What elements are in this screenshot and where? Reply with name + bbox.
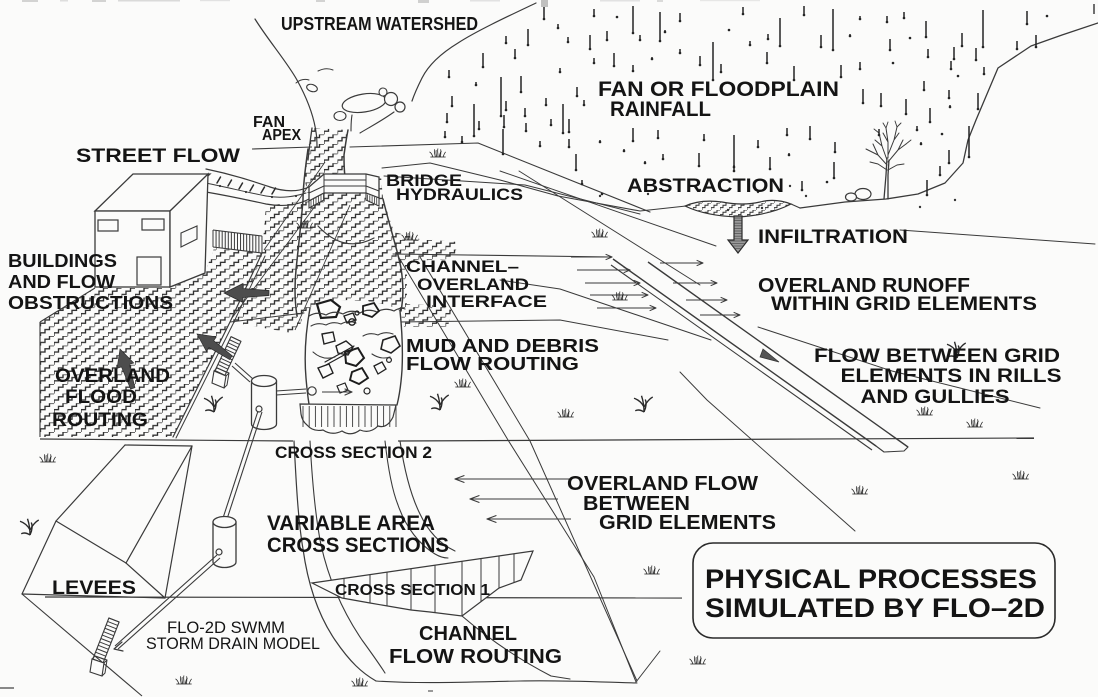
svg-text:GRID ELEMENTS: GRID ELEMENTS	[599, 512, 776, 534]
svg-text:PHYSICAL PROCESSES: PHYSICAL PROCESSES	[705, 564, 1037, 594]
svg-text:SIMULATED BY FLO–2D: SIMULATED BY FLO–2D	[705, 593, 1045, 623]
svg-text:ELEMENTS IN RILLS: ELEMENTS IN RILLS	[841, 366, 1062, 387]
svg-text:OVERLAND FLOW: OVERLAND FLOW	[567, 473, 758, 495]
svg-text:INTERFACE: INTERFACE	[426, 292, 547, 311]
svg-text:INFILTRATION: INFILTRATION	[758, 227, 908, 248]
svg-text:CROSS SECTIONS: CROSS SECTIONS	[267, 534, 449, 557]
svg-text:CHANNEL: CHANNEL	[419, 623, 517, 645]
svg-text:FLOW ROUTING: FLOW ROUTING	[406, 354, 579, 374]
svg-text:RAINFALL: RAINFALL	[610, 98, 711, 121]
svg-text:AND GULLIES: AND GULLIES	[861, 387, 1010, 408]
svg-text:STORM DRAIN MODEL: STORM DRAIN MODEL	[146, 634, 320, 653]
svg-text:FLOW ROUTING: FLOW ROUTING	[389, 646, 562, 668]
svg-text:WITHIN GRID ELEMENTS: WITHIN GRID ELEMENTS	[771, 294, 1037, 315]
svg-text:STREET FLOW: STREET FLOW	[76, 146, 240, 167]
svg-text:CROSS SECTION 2: CROSS SECTION 2	[275, 443, 432, 462]
svg-text:FLOOD: FLOOD	[65, 387, 137, 408]
svg-text:ABSTRACTION: ABSTRACTION	[627, 176, 784, 197]
svg-text:UPSTREAM WATERSHED: UPSTREAM WATERSHED	[281, 14, 478, 34]
svg-text:CROSS SECTION 1: CROSS SECTION 1	[335, 582, 490, 599]
svg-text:BUILDINGS: BUILDINGS	[8, 251, 117, 271]
svg-text:APEX: APEX	[262, 127, 301, 144]
svg-text:ROUTING: ROUTING	[52, 410, 148, 431]
svg-text:LEVEES: LEVEES	[52, 578, 136, 599]
svg-text:FLOW BETWEEN GRID: FLOW BETWEEN GRID	[814, 346, 1060, 367]
svg-text:HYDRAULICS: HYDRAULICS	[396, 185, 523, 204]
svg-text:MUD AND DEBRIS: MUD AND DEBRIS	[406, 336, 599, 356]
svg-text:OBSTRUCTIONS: OBSTRUCTIONS	[8, 293, 173, 313]
svg-text:OVERLAND: OVERLAND	[55, 366, 170, 387]
svg-text:VARIABLE AREA: VARIABLE AREA	[267, 512, 435, 535]
svg-text:AND FLOW: AND FLOW	[8, 272, 115, 292]
svg-text:CHANNEL–: CHANNEL–	[406, 257, 519, 276]
